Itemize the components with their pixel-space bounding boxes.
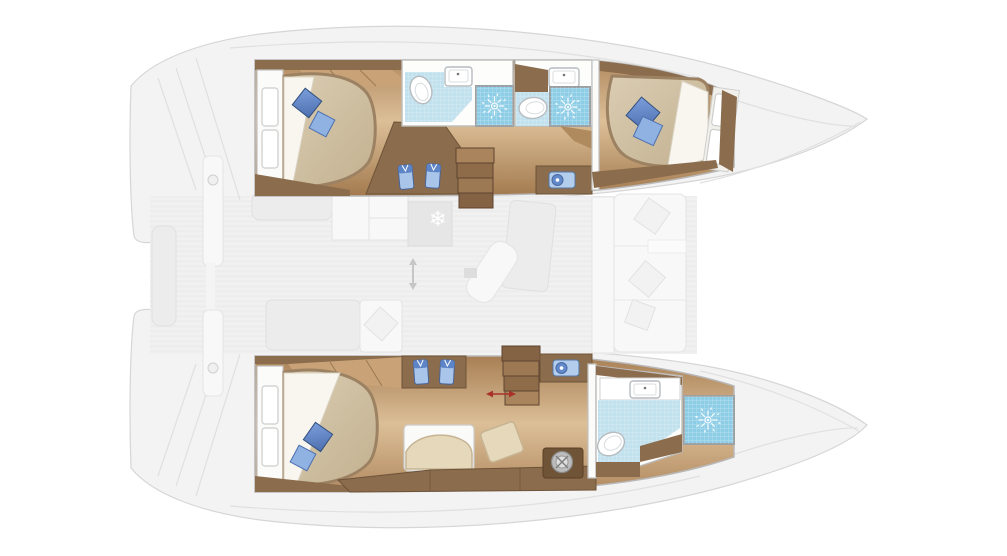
shower-cubicle [684,396,734,444]
side-walkway [592,197,614,353]
forward-cockpit-sofa [614,194,686,352]
blue-towel [413,360,429,385]
cabin-partition [588,364,596,478]
shower-cubicle [550,87,590,126]
blue-towel [398,164,414,189]
starboard-dresser [402,356,466,388]
remote-box [464,268,477,278]
port-vanity-desk [536,166,592,194]
headboard [257,366,283,488]
starboard-vanity-desk [540,354,592,382]
floor-plan-canvas: ❄ [0,0,1007,556]
winch-icon [552,452,573,473]
boat-floor-plan: ❄ [0,0,1007,556]
blue-towel [439,360,454,385]
port-companionway-stairs [456,148,494,208]
aft-cockpit-bench [152,226,176,326]
washbasin [445,67,472,86]
small-basin [549,172,575,188]
blue-towel [425,164,441,189]
fridge-unit: ❄ [408,202,452,246]
headboard-pillow [262,386,278,424]
port-aft-bathroom [402,60,513,126]
daybed [266,300,360,350]
headboard-pillow [262,130,278,168]
headboard-pillow [262,88,278,126]
headboard-pillow [262,428,278,466]
port-hull-interior [255,60,739,208]
snowflake-icon: ❄ [429,207,447,231]
washbasin [600,378,680,400]
bathroom-cabinet [596,462,640,477]
starboard-companionway-stairs [502,346,540,405]
cabin-partition [592,60,599,190]
washbasin [549,68,579,87]
starboard-lounge-seat [404,425,474,471]
shower-cubicle [476,86,513,126]
galley-cabinets [332,196,408,240]
small-basin [553,360,579,376]
